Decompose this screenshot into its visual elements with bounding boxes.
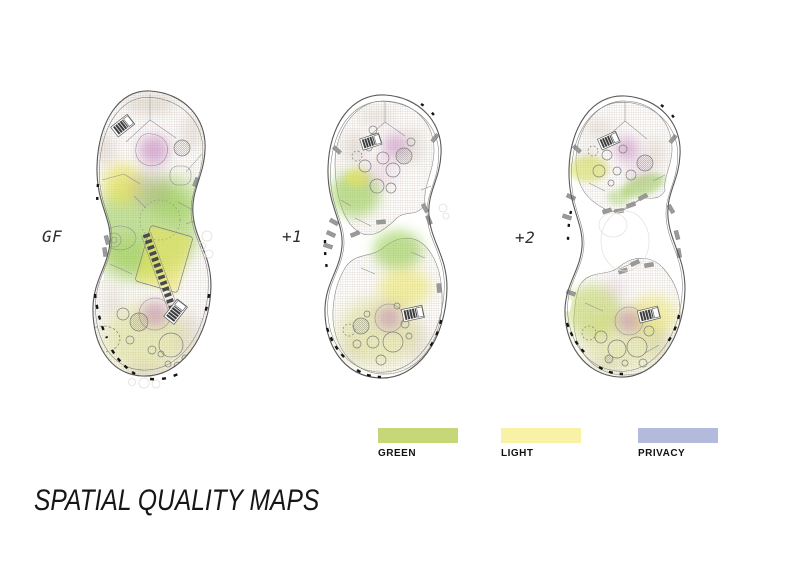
gf-wall-tick — [104, 235, 110, 245]
legend-swatch-light — [501, 428, 581, 443]
spatial-quality-maps-page: GF +1 +2 — [0, 0, 800, 565]
floor-plan-plus2 — [559, 93, 687, 391]
gf-notch2 — [86, 345, 102, 364]
legend-label-light: LIGHT — [501, 448, 583, 459]
gf-wall-tick — [102, 247, 107, 256]
legend-item-privacy: PRIVACY — [638, 428, 720, 459]
floor-plan-gf-drawing — [90, 88, 214, 388]
floor-label-plus2: +2 — [515, 228, 535, 247]
p1-ghost-circles — [439, 204, 449, 219]
legend-item-light: LIGHT — [501, 428, 583, 459]
p1-notch2 — [324, 259, 332, 269]
floor-label-plus1: +1 — [282, 227, 302, 246]
floor-plan-plus2-drawing — [559, 93, 687, 391]
legend-swatch-privacy — [638, 428, 718, 443]
legend-item-green: GREEN — [378, 428, 460, 459]
floor-plan-gf — [90, 88, 214, 388]
page-title: SPATIAL QUALITY MAPS — [34, 484, 319, 518]
legend-label-privacy: PRIVACY — [638, 448, 720, 459]
legend-swatch-green — [378, 428, 458, 443]
floor-plan-plus1 — [321, 92, 451, 392]
floor-label-gf: GF — [42, 227, 62, 246]
floor-plan-plus1-drawing — [321, 92, 451, 392]
legend-label-green: GREEN — [378, 448, 460, 459]
